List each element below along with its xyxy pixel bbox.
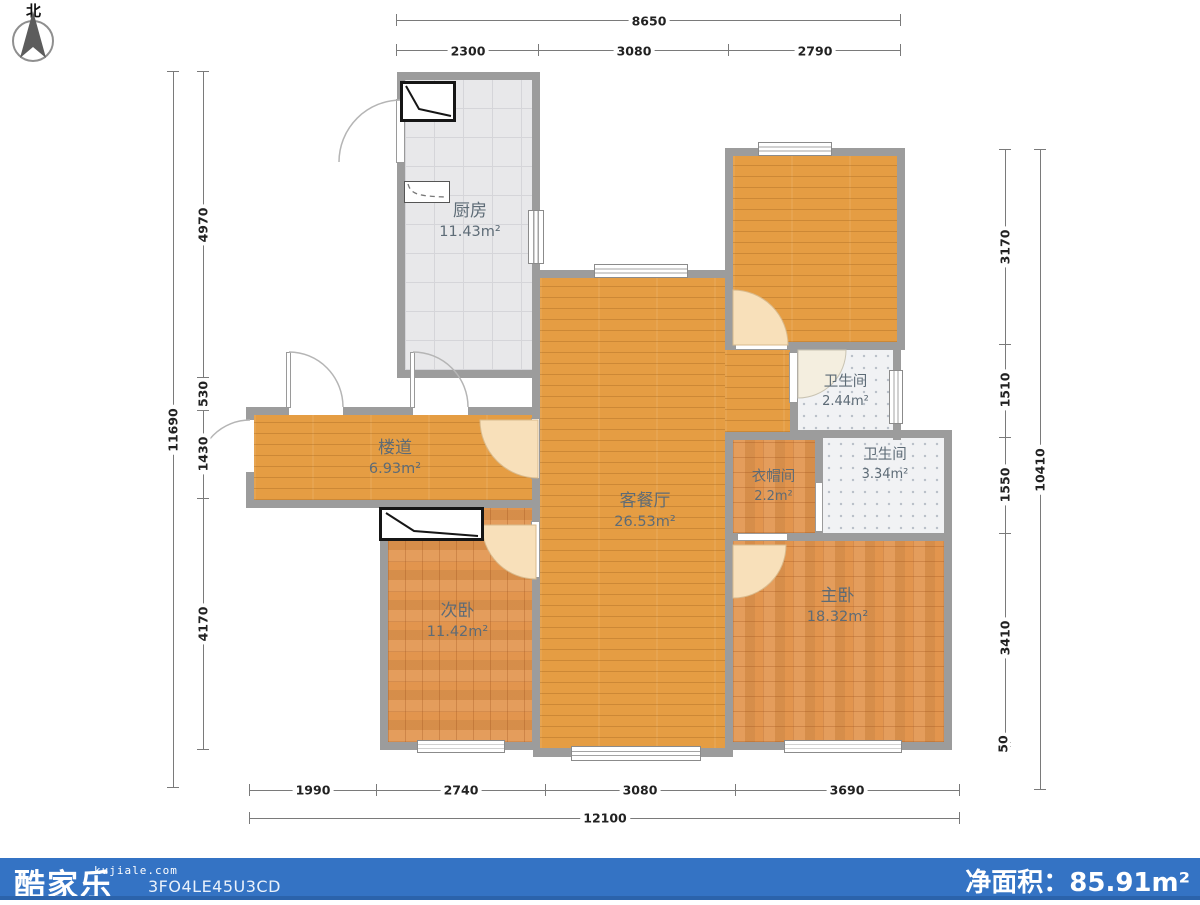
door-swing <box>480 420 538 478</box>
room-name: 楼道 <box>310 437 480 460</box>
room-name: 卫生间 <box>798 373 893 393</box>
room-area: 26.53m² <box>560 513 730 533</box>
dim-top-seg: 2790 <box>795 44 836 59</box>
room-name: 客餐厅 <box>560 490 730 513</box>
dimension-tick <box>959 812 960 824</box>
dimension-tick <box>999 533 1011 534</box>
room-area: 11.42m² <box>385 623 530 643</box>
flue-symbol <box>379 507 484 541</box>
net-area-label: 净面积： <box>965 868 1069 898</box>
dim-left-seg: 4170 <box>196 604 211 645</box>
net-area: 净面积：85.91m² <box>965 862 1190 899</box>
room-name: 主卧 <box>765 585 910 608</box>
door-swing <box>482 525 536 579</box>
room-name: 卫生间 <box>823 446 947 466</box>
dimension-tick <box>545 784 546 796</box>
dimension-tick <box>900 44 901 56</box>
dimension-tick <box>728 44 729 56</box>
brand-domain: kujiale.com <box>94 864 178 877</box>
dim-bottom-seg: 3690 <box>827 783 868 798</box>
compass-icon <box>6 8 60 66</box>
dimension-tick <box>735 784 736 796</box>
door-arc <box>289 352 343 407</box>
dim-right-seg: 50 <box>996 732 1011 755</box>
room-label-kitchen: 厨房 11.43m² <box>405 200 535 243</box>
dimension-tick <box>999 344 1011 345</box>
room-area: 2.2m² <box>726 488 821 506</box>
room-label-bath-large: 卫生间 3.34m² <box>823 446 947 483</box>
room-label-living: 客餐厅 26.53m² <box>560 490 730 533</box>
room-area: 3.34m² <box>823 466 947 484</box>
room-label-bedroom-second: 次卧 11.42m² <box>385 600 530 643</box>
dimension-tick <box>167 71 179 72</box>
dimension-tick <box>167 787 179 788</box>
dimension-tick <box>1034 789 1046 790</box>
door-swing <box>733 290 788 345</box>
dim-bottom-total: 12100 <box>580 811 630 826</box>
dim-right-total: 10410 <box>1033 445 1048 495</box>
dimension-tick <box>197 498 209 499</box>
room-label-cloakroom: 衣帽间 2.2m² <box>726 468 821 505</box>
dim-right-seg: 3170 <box>998 227 1013 268</box>
net-area-value: 85.91m² <box>1069 868 1190 898</box>
dim-top-seg: 3080 <box>614 44 655 59</box>
flue-symbol <box>400 81 456 122</box>
dimension-tick <box>197 71 209 72</box>
room-label-bath-small: 卫生间 2.44m² <box>798 373 893 410</box>
dimension-line <box>203 72 204 750</box>
dim-bottom-seg: 1990 <box>293 783 334 798</box>
dim-bottom-seg: 2740 <box>441 783 482 798</box>
dimension-tick <box>900 14 901 26</box>
dimension-tick <box>197 749 209 750</box>
dim-bottom-seg: 3080 <box>620 783 661 798</box>
dim-left-seg: 4970 <box>196 205 211 246</box>
room-area: 2.44m² <box>798 393 893 411</box>
room-area: 11.43m² <box>405 223 535 243</box>
dim-right-seg: 1550 <box>998 465 1013 506</box>
plan-code: 3FO4LE45U3CD <box>148 877 281 896</box>
room-area: 6.93m² <box>310 460 480 480</box>
dim-right-seg: 1510 <box>998 370 1013 411</box>
dim-left-seg: 1430 <box>196 434 211 475</box>
room-name: 次卧 <box>385 600 530 623</box>
dim-right-seg: 3410 <box>998 618 1013 659</box>
dim-left-total: 11690 <box>166 405 181 455</box>
dimension-tick <box>959 784 960 796</box>
room-label-corridor: 楼道 6.93m² <box>310 437 480 480</box>
dim-top-seg: 2300 <box>448 44 489 59</box>
dimension-tick <box>396 44 397 56</box>
door-arc <box>339 100 401 162</box>
door-arc <box>413 352 468 407</box>
dimension-tick <box>999 149 1011 150</box>
footer-edge <box>0 896 1200 900</box>
footer-bar: 酷家乐 kujiale.com 3FO4LE45U3CD 净面积：85.91m² <box>0 858 1200 900</box>
dimension-tick <box>1034 149 1046 150</box>
room-name: 衣帽间 <box>726 468 821 488</box>
room-name: 厨房 <box>405 200 535 223</box>
dimension-tick <box>396 14 397 26</box>
dimension-tick <box>249 812 250 824</box>
dimension-tick <box>249 784 250 796</box>
dim-top-total: 8650 <box>629 14 670 29</box>
room-area: 18.32m² <box>765 608 910 628</box>
dimension-tick <box>538 44 539 56</box>
dimension-tick <box>999 437 1011 438</box>
room-label-bedroom-master: 主卧 18.32m² <box>765 585 910 628</box>
north-compass: 北 <box>6 0 66 70</box>
dimension-tick <box>197 410 209 411</box>
dim-left-seg: 530 <box>196 378 211 410</box>
dimension-tick <box>376 784 377 796</box>
